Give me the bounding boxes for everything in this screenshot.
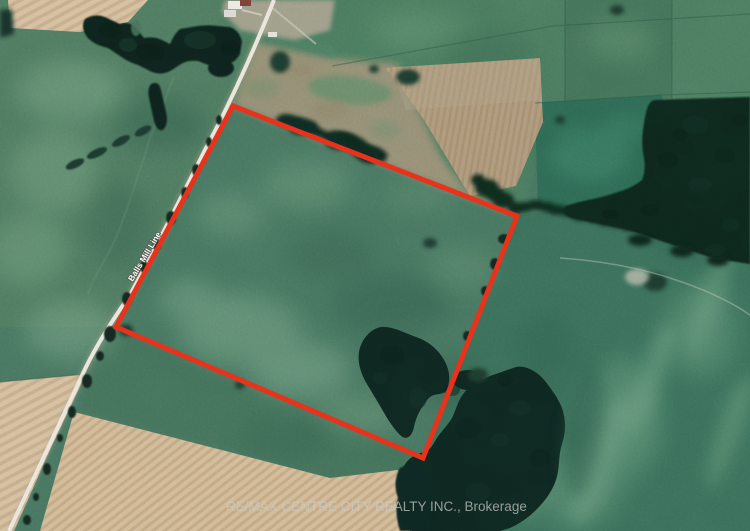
svg-text:RE/MAX CENTRE CITY REALTY INC.: RE/MAX CENTRE CITY REALTY INC., Brokerag… [226, 499, 527, 514]
